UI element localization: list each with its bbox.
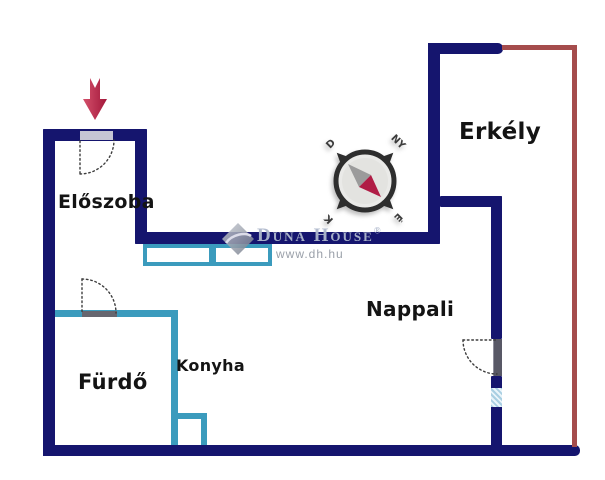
compass-icon: D NY K É — [308, 124, 421, 237]
entrance-arrow-icon — [83, 78, 107, 120]
watermark-brand: Duna House® — [257, 225, 381, 247]
floor-plan: D NY K É Előszoba Erkély Nappali Konyha … — [0, 0, 605, 480]
compass-label-south: D — [324, 137, 338, 151]
compass-label-north: É — [391, 210, 405, 224]
watermark-url: www.dh.hu — [276, 247, 344, 261]
balcony-door-arc — [463, 340, 497, 374]
compass-label-east: K — [322, 211, 336, 225]
compass-label-west: NY — [388, 133, 407, 152]
entrance-door-arc — [80, 140, 114, 174]
brand-diamond-icon — [222, 223, 254, 255]
watermark-registered-mark: ® — [374, 226, 381, 236]
watermark-brand-text: Duna House — [257, 225, 374, 246]
bathroom-door-arc — [82, 279, 116, 313]
